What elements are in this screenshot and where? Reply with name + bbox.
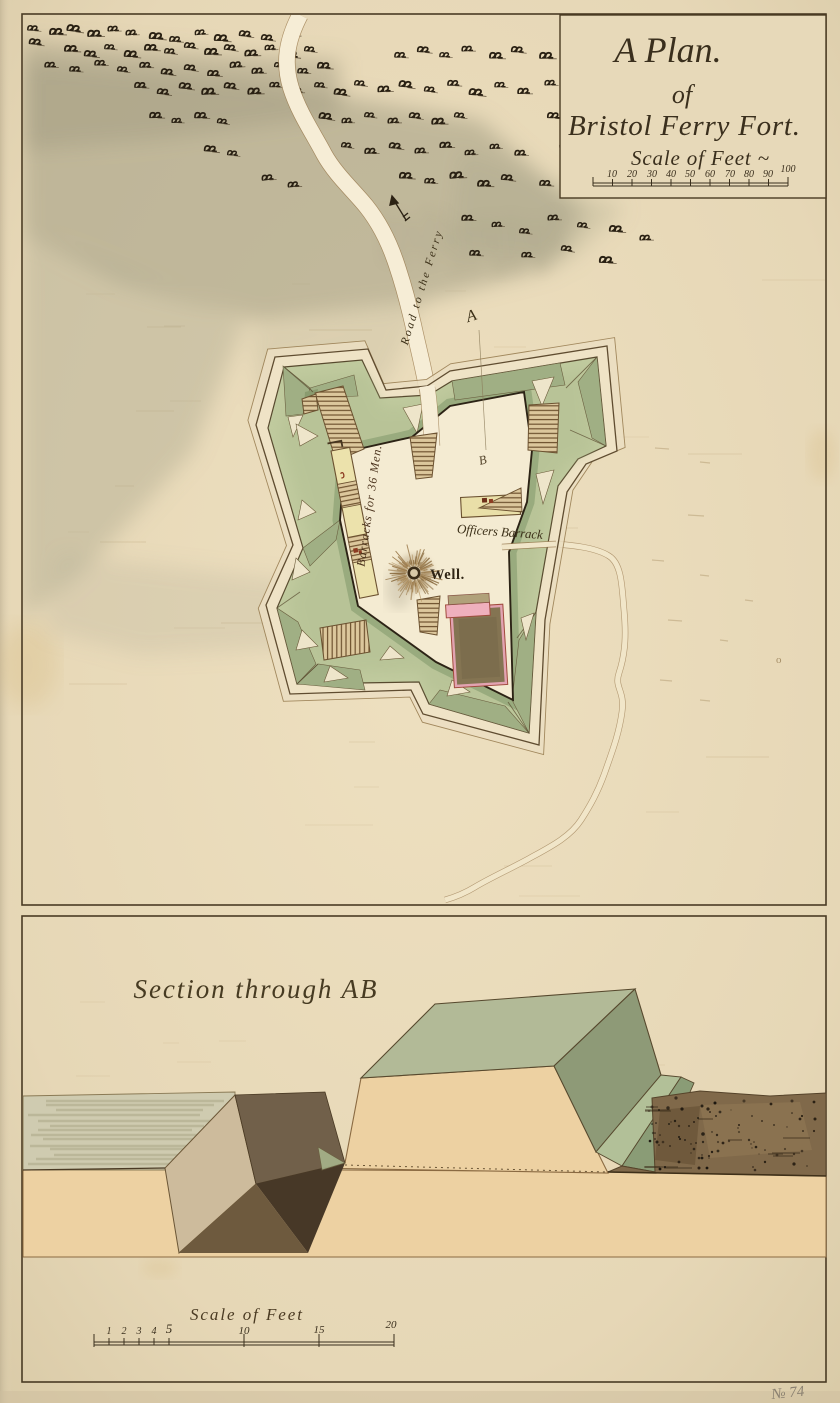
svg-text:20: 20 <box>627 169 637 180</box>
svg-text:5: 5 <box>166 1321 173 1336</box>
svg-text:60: 60 <box>705 169 715 180</box>
svg-text:2: 2 <box>122 1326 127 1337</box>
svg-text:A Plan.: A Plan. <box>612 30 721 70</box>
svg-text:40: 40 <box>666 169 676 180</box>
svg-text:70: 70 <box>725 169 735 180</box>
svg-text:Bristol Ferry Fort.: Bristol Ferry Fort. <box>568 110 800 142</box>
svg-text:15: 15 <box>314 1324 326 1336</box>
svg-text:50: 50 <box>685 169 695 180</box>
svg-text:100: 100 <box>781 164 796 175</box>
svg-text:90: 90 <box>763 169 773 180</box>
svg-text:20: 20 <box>386 1319 398 1331</box>
svg-text:o: o <box>776 654 782 666</box>
svg-text:Scale of Feet ~: Scale of Feet ~ <box>631 146 770 170</box>
svg-text:30: 30 <box>646 169 657 180</box>
svg-text:3: 3 <box>136 1326 142 1337</box>
svg-text:10: 10 <box>239 1325 251 1337</box>
svg-text:1: 1 <box>107 1326 112 1337</box>
svg-text:4: 4 <box>152 1326 157 1337</box>
svg-text:Well.: Well. <box>430 567 465 583</box>
svg-text:80: 80 <box>744 169 754 180</box>
svg-text:10: 10 <box>607 169 617 180</box>
